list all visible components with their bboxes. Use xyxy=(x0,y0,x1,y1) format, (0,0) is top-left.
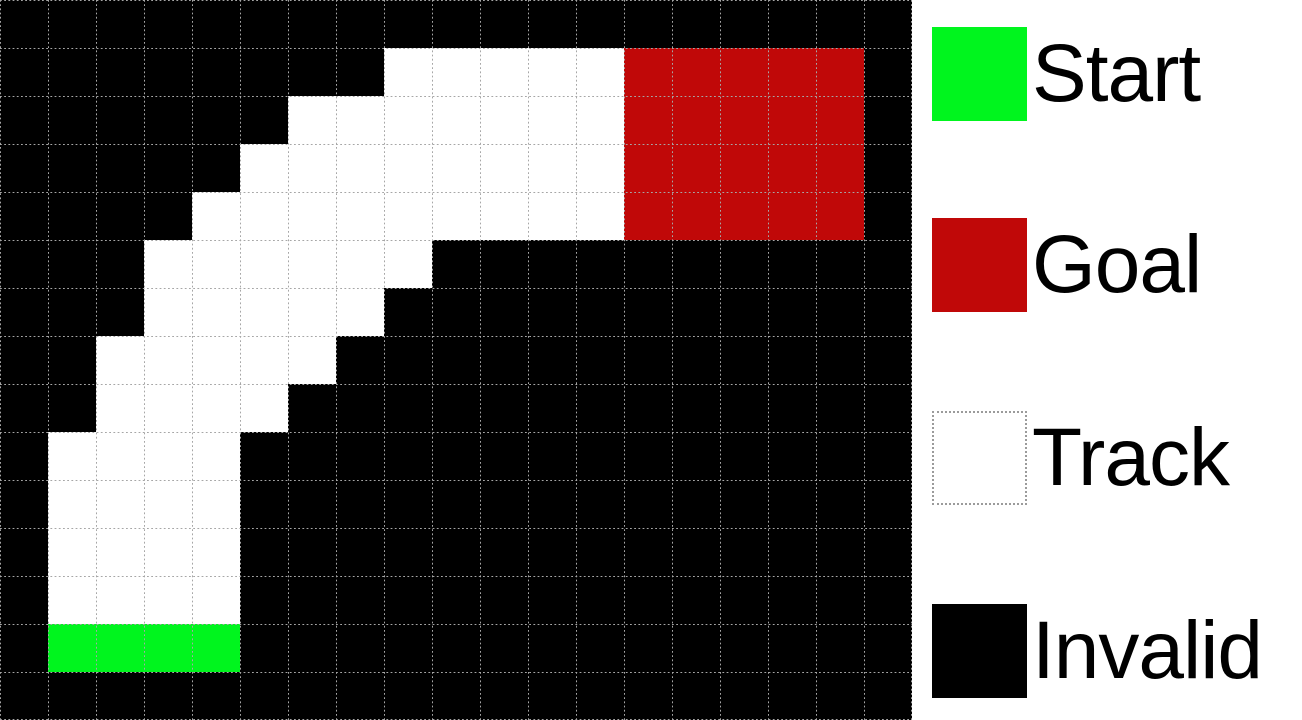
cell-track xyxy=(576,48,624,96)
cell-invalid xyxy=(48,48,96,96)
cell-invalid xyxy=(720,384,768,432)
cell-goal xyxy=(624,144,672,192)
legend-entry-invalid: Invalid xyxy=(932,603,1262,698)
cell-invalid xyxy=(336,0,384,48)
cell-invalid xyxy=(768,480,816,528)
cell-invalid xyxy=(528,240,576,288)
cell-track xyxy=(96,576,144,624)
cell-invalid xyxy=(432,480,480,528)
cell-invalid xyxy=(576,624,624,672)
cell-invalid xyxy=(240,480,288,528)
cell-invalid xyxy=(432,240,480,288)
cell-invalid xyxy=(816,576,864,624)
cell-start xyxy=(96,624,144,672)
cell-invalid xyxy=(720,672,768,720)
cell-track xyxy=(288,240,336,288)
cell-invalid xyxy=(576,432,624,480)
cell-track xyxy=(96,384,144,432)
legend-label: Invalid xyxy=(1032,610,1262,692)
cell-invalid xyxy=(816,432,864,480)
cell-invalid xyxy=(0,576,48,624)
cell-invalid xyxy=(96,144,144,192)
cell-invalid xyxy=(672,576,720,624)
cell-invalid xyxy=(720,480,768,528)
cell-track xyxy=(480,96,528,144)
cell-track xyxy=(192,384,240,432)
cell-invalid xyxy=(720,0,768,48)
cell-invalid xyxy=(480,480,528,528)
cell-track xyxy=(192,528,240,576)
cell-invalid xyxy=(576,0,624,48)
cell-invalid xyxy=(240,0,288,48)
cell-invalid xyxy=(864,480,912,528)
cell-invalid xyxy=(576,576,624,624)
cell-invalid xyxy=(480,336,528,384)
cell-invalid xyxy=(768,672,816,720)
cell-invalid xyxy=(0,528,48,576)
cell-invalid xyxy=(384,336,432,384)
cell-invalid xyxy=(0,96,48,144)
cell-invalid xyxy=(0,480,48,528)
cell-invalid xyxy=(240,672,288,720)
cell-track xyxy=(528,96,576,144)
cell-invalid xyxy=(432,432,480,480)
cell-invalid xyxy=(384,288,432,336)
cell-invalid xyxy=(192,48,240,96)
cell-goal xyxy=(624,48,672,96)
cell-track xyxy=(240,240,288,288)
cell-invalid xyxy=(768,432,816,480)
cell-invalid xyxy=(336,528,384,576)
cell-track xyxy=(144,384,192,432)
cell-invalid xyxy=(48,672,96,720)
cell-invalid xyxy=(864,384,912,432)
cell-invalid xyxy=(192,0,240,48)
cell-invalid xyxy=(672,336,720,384)
cell-invalid xyxy=(624,432,672,480)
cell-invalid xyxy=(48,384,96,432)
cell-invalid xyxy=(864,96,912,144)
cell-invalid xyxy=(864,0,912,48)
cell-track xyxy=(48,432,96,480)
cell-invalid xyxy=(96,672,144,720)
cell-invalid xyxy=(240,576,288,624)
cell-invalid xyxy=(816,384,864,432)
cell-invalid xyxy=(432,288,480,336)
cell-invalid xyxy=(96,96,144,144)
cell-invalid xyxy=(336,576,384,624)
cell-invalid xyxy=(288,48,336,96)
cell-invalid xyxy=(384,0,432,48)
cell-invalid xyxy=(816,0,864,48)
cell-invalid xyxy=(48,240,96,288)
cell-invalid xyxy=(288,0,336,48)
cell-track xyxy=(480,192,528,240)
cell-invalid xyxy=(816,480,864,528)
cell-invalid xyxy=(48,288,96,336)
cell-invalid xyxy=(384,432,432,480)
cell-invalid xyxy=(864,144,912,192)
cell-invalid xyxy=(624,336,672,384)
cell-goal xyxy=(720,96,768,144)
cell-invalid xyxy=(720,432,768,480)
cell-invalid xyxy=(768,624,816,672)
cell-track xyxy=(528,144,576,192)
cell-invalid xyxy=(528,672,576,720)
cell-invalid xyxy=(528,576,576,624)
cell-track xyxy=(192,288,240,336)
cell-invalid xyxy=(432,672,480,720)
cell-goal xyxy=(720,144,768,192)
cell-track xyxy=(288,336,336,384)
cell-invalid xyxy=(768,240,816,288)
cell-invalid xyxy=(480,528,528,576)
cell-track xyxy=(240,336,288,384)
cell-invalid xyxy=(240,48,288,96)
cell-track xyxy=(144,240,192,288)
cell-invalid xyxy=(480,432,528,480)
legend-entry-start: Start xyxy=(932,26,1200,121)
cell-invalid xyxy=(576,384,624,432)
cell-invalid xyxy=(336,384,384,432)
cell-start xyxy=(192,624,240,672)
cell-track xyxy=(336,240,384,288)
cell-track xyxy=(96,480,144,528)
cell-invalid xyxy=(672,0,720,48)
cell-invalid xyxy=(144,48,192,96)
cell-track xyxy=(336,144,384,192)
cell-track xyxy=(336,288,384,336)
cell-invalid xyxy=(288,576,336,624)
cell-track xyxy=(192,336,240,384)
cell-goal xyxy=(672,192,720,240)
cell-invalid xyxy=(864,432,912,480)
cell-invalid xyxy=(96,240,144,288)
cell-track xyxy=(192,576,240,624)
cell-track xyxy=(48,576,96,624)
cell-invalid xyxy=(96,288,144,336)
cell-track xyxy=(144,576,192,624)
legend-label: Goal xyxy=(1032,224,1201,306)
cell-invalid xyxy=(864,672,912,720)
cell-invalid xyxy=(48,192,96,240)
cell-track xyxy=(192,192,240,240)
cell-invalid xyxy=(288,480,336,528)
cell-invalid xyxy=(720,240,768,288)
cell-invalid xyxy=(720,624,768,672)
cell-invalid xyxy=(576,480,624,528)
cell-start xyxy=(144,624,192,672)
cell-goal xyxy=(672,96,720,144)
cell-invalid xyxy=(432,336,480,384)
cell-invalid xyxy=(144,672,192,720)
cell-track xyxy=(432,48,480,96)
cell-track xyxy=(336,192,384,240)
cell-goal xyxy=(816,192,864,240)
cell-invalid xyxy=(816,336,864,384)
cell-goal xyxy=(816,144,864,192)
cell-invalid xyxy=(0,0,48,48)
cell-invalid xyxy=(0,48,48,96)
cell-invalid xyxy=(528,336,576,384)
cell-track xyxy=(288,192,336,240)
legend-swatch-track xyxy=(932,411,1027,505)
cell-invalid xyxy=(624,0,672,48)
cell-invalid xyxy=(864,336,912,384)
cell-invalid xyxy=(720,288,768,336)
cell-invalid xyxy=(864,240,912,288)
cell-invalid xyxy=(864,48,912,96)
cell-invalid xyxy=(528,0,576,48)
cell-track xyxy=(240,144,288,192)
cell-track xyxy=(384,144,432,192)
cell-track xyxy=(240,192,288,240)
cell-track xyxy=(288,288,336,336)
cell-invalid xyxy=(576,528,624,576)
cell-invalid xyxy=(480,384,528,432)
cell-goal xyxy=(768,144,816,192)
cell-invalid xyxy=(720,576,768,624)
cell-invalid xyxy=(432,528,480,576)
cell-invalid xyxy=(864,192,912,240)
cell-invalid xyxy=(672,240,720,288)
cell-invalid xyxy=(0,240,48,288)
cell-invalid xyxy=(144,144,192,192)
cell-invalid xyxy=(528,288,576,336)
cell-track xyxy=(144,336,192,384)
cell-goal xyxy=(672,144,720,192)
cell-invalid xyxy=(0,672,48,720)
cell-invalid xyxy=(384,624,432,672)
cell-invalid xyxy=(768,0,816,48)
cell-track xyxy=(480,144,528,192)
cell-invalid xyxy=(768,288,816,336)
cell-invalid xyxy=(528,624,576,672)
cell-track xyxy=(576,144,624,192)
cell-track xyxy=(144,432,192,480)
cell-track xyxy=(288,144,336,192)
racetrack-figure: StartGoalTrackInvalid xyxy=(0,0,1302,720)
cell-track xyxy=(384,240,432,288)
cell-goal xyxy=(720,192,768,240)
cell-invalid xyxy=(432,384,480,432)
cell-invalid xyxy=(624,480,672,528)
cell-invalid xyxy=(288,432,336,480)
cell-goal xyxy=(624,192,672,240)
cell-invalid xyxy=(816,240,864,288)
cell-invalid xyxy=(384,384,432,432)
cell-track xyxy=(576,96,624,144)
cell-invalid xyxy=(576,672,624,720)
cell-invalid xyxy=(864,624,912,672)
cell-invalid xyxy=(384,576,432,624)
cell-track xyxy=(48,528,96,576)
cell-invalid xyxy=(48,144,96,192)
legend-label: Track xyxy=(1032,417,1229,499)
cell-invalid xyxy=(480,288,528,336)
cell-invalid xyxy=(768,336,816,384)
cell-goal xyxy=(768,96,816,144)
cell-invalid xyxy=(672,432,720,480)
cell-invalid xyxy=(288,384,336,432)
cell-invalid xyxy=(0,192,48,240)
cell-invalid xyxy=(384,528,432,576)
cell-start xyxy=(48,624,96,672)
cell-invalid xyxy=(672,672,720,720)
cell-invalid xyxy=(144,192,192,240)
cell-goal xyxy=(672,48,720,96)
cell-invalid xyxy=(672,624,720,672)
cell-invalid xyxy=(768,576,816,624)
cell-invalid xyxy=(816,528,864,576)
track-grid xyxy=(0,0,912,720)
cell-invalid xyxy=(576,240,624,288)
cell-invalid xyxy=(480,672,528,720)
cell-track xyxy=(144,480,192,528)
cell-invalid xyxy=(336,336,384,384)
cell-invalid xyxy=(624,240,672,288)
cell-invalid xyxy=(576,288,624,336)
legend-swatch-invalid xyxy=(932,604,1027,698)
cell-track xyxy=(144,288,192,336)
cell-invalid xyxy=(192,96,240,144)
cell-track xyxy=(528,192,576,240)
cell-invalid xyxy=(768,384,816,432)
cell-invalid xyxy=(816,624,864,672)
cell-invalid xyxy=(864,288,912,336)
cell-invalid xyxy=(480,624,528,672)
cell-invalid xyxy=(48,336,96,384)
cell-invalid xyxy=(0,432,48,480)
cell-track xyxy=(144,528,192,576)
cell-track xyxy=(528,48,576,96)
cell-invalid xyxy=(624,624,672,672)
cell-track xyxy=(480,48,528,96)
cell-invalid xyxy=(624,384,672,432)
cell-invalid xyxy=(96,48,144,96)
cell-invalid xyxy=(528,480,576,528)
cell-invalid xyxy=(0,624,48,672)
cell-invalid xyxy=(528,528,576,576)
cell-invalid xyxy=(624,576,672,624)
cell-track xyxy=(384,192,432,240)
cell-invalid xyxy=(192,672,240,720)
cell-invalid xyxy=(528,384,576,432)
cell-invalid xyxy=(864,528,912,576)
cell-track xyxy=(48,480,96,528)
cell-invalid xyxy=(192,144,240,192)
cell-invalid xyxy=(96,192,144,240)
cell-track xyxy=(288,96,336,144)
cell-track xyxy=(192,240,240,288)
cell-invalid xyxy=(48,0,96,48)
cell-invalid xyxy=(720,336,768,384)
cell-invalid xyxy=(432,0,480,48)
cell-invalid xyxy=(624,288,672,336)
cell-invalid xyxy=(288,624,336,672)
cell-invalid xyxy=(384,672,432,720)
cell-track xyxy=(432,144,480,192)
cell-track xyxy=(96,432,144,480)
cell-track xyxy=(432,96,480,144)
cell-invalid xyxy=(720,528,768,576)
cell-invalid xyxy=(816,288,864,336)
cell-invalid xyxy=(672,528,720,576)
cell-invalid xyxy=(288,672,336,720)
cell-invalid xyxy=(144,96,192,144)
cell-invalid xyxy=(336,624,384,672)
cell-invalid xyxy=(672,384,720,432)
cell-track xyxy=(96,336,144,384)
cell-invalid xyxy=(336,432,384,480)
legend-entry-track: Track xyxy=(932,410,1229,505)
cell-track xyxy=(96,528,144,576)
cell-track xyxy=(192,432,240,480)
cell-invalid xyxy=(288,528,336,576)
cell-invalid xyxy=(432,624,480,672)
cell-invalid xyxy=(336,48,384,96)
cell-invalid xyxy=(0,336,48,384)
cell-track xyxy=(240,288,288,336)
cell-invalid xyxy=(480,576,528,624)
legend-label: Start xyxy=(1032,33,1200,115)
legend-entry-goal: Goal xyxy=(932,217,1201,312)
cell-invalid xyxy=(672,288,720,336)
cell-goal xyxy=(720,48,768,96)
cell-track xyxy=(384,96,432,144)
cell-invalid xyxy=(240,96,288,144)
cell-invalid xyxy=(144,0,192,48)
cell-track xyxy=(336,96,384,144)
cell-goal xyxy=(816,48,864,96)
cell-invalid xyxy=(864,576,912,624)
cell-invalid xyxy=(0,144,48,192)
cell-invalid xyxy=(480,240,528,288)
cell-invalid xyxy=(768,528,816,576)
cell-track xyxy=(192,480,240,528)
cell-track xyxy=(576,192,624,240)
cell-invalid xyxy=(0,384,48,432)
cell-invalid xyxy=(432,576,480,624)
cell-invalid xyxy=(336,480,384,528)
cell-invalid xyxy=(0,288,48,336)
cell-invalid xyxy=(384,480,432,528)
legend: StartGoalTrackInvalid xyxy=(912,0,1302,720)
legend-swatch-start xyxy=(932,27,1027,121)
cell-goal xyxy=(816,96,864,144)
cell-invalid xyxy=(672,480,720,528)
cell-track xyxy=(432,192,480,240)
cell-invalid xyxy=(624,528,672,576)
cell-track xyxy=(384,48,432,96)
cell-invalid xyxy=(48,96,96,144)
legend-swatch-goal xyxy=(932,218,1027,312)
cell-goal xyxy=(624,96,672,144)
cell-invalid xyxy=(480,0,528,48)
cell-invalid xyxy=(240,528,288,576)
cell-track xyxy=(240,384,288,432)
cell-invalid xyxy=(336,672,384,720)
cell-invalid xyxy=(624,672,672,720)
cell-invalid xyxy=(528,432,576,480)
cell-goal xyxy=(768,48,816,96)
cell-goal xyxy=(768,192,816,240)
cell-invalid xyxy=(240,624,288,672)
cell-invalid xyxy=(96,0,144,48)
cell-invalid xyxy=(816,672,864,720)
cell-invalid xyxy=(576,336,624,384)
cell-invalid xyxy=(240,432,288,480)
